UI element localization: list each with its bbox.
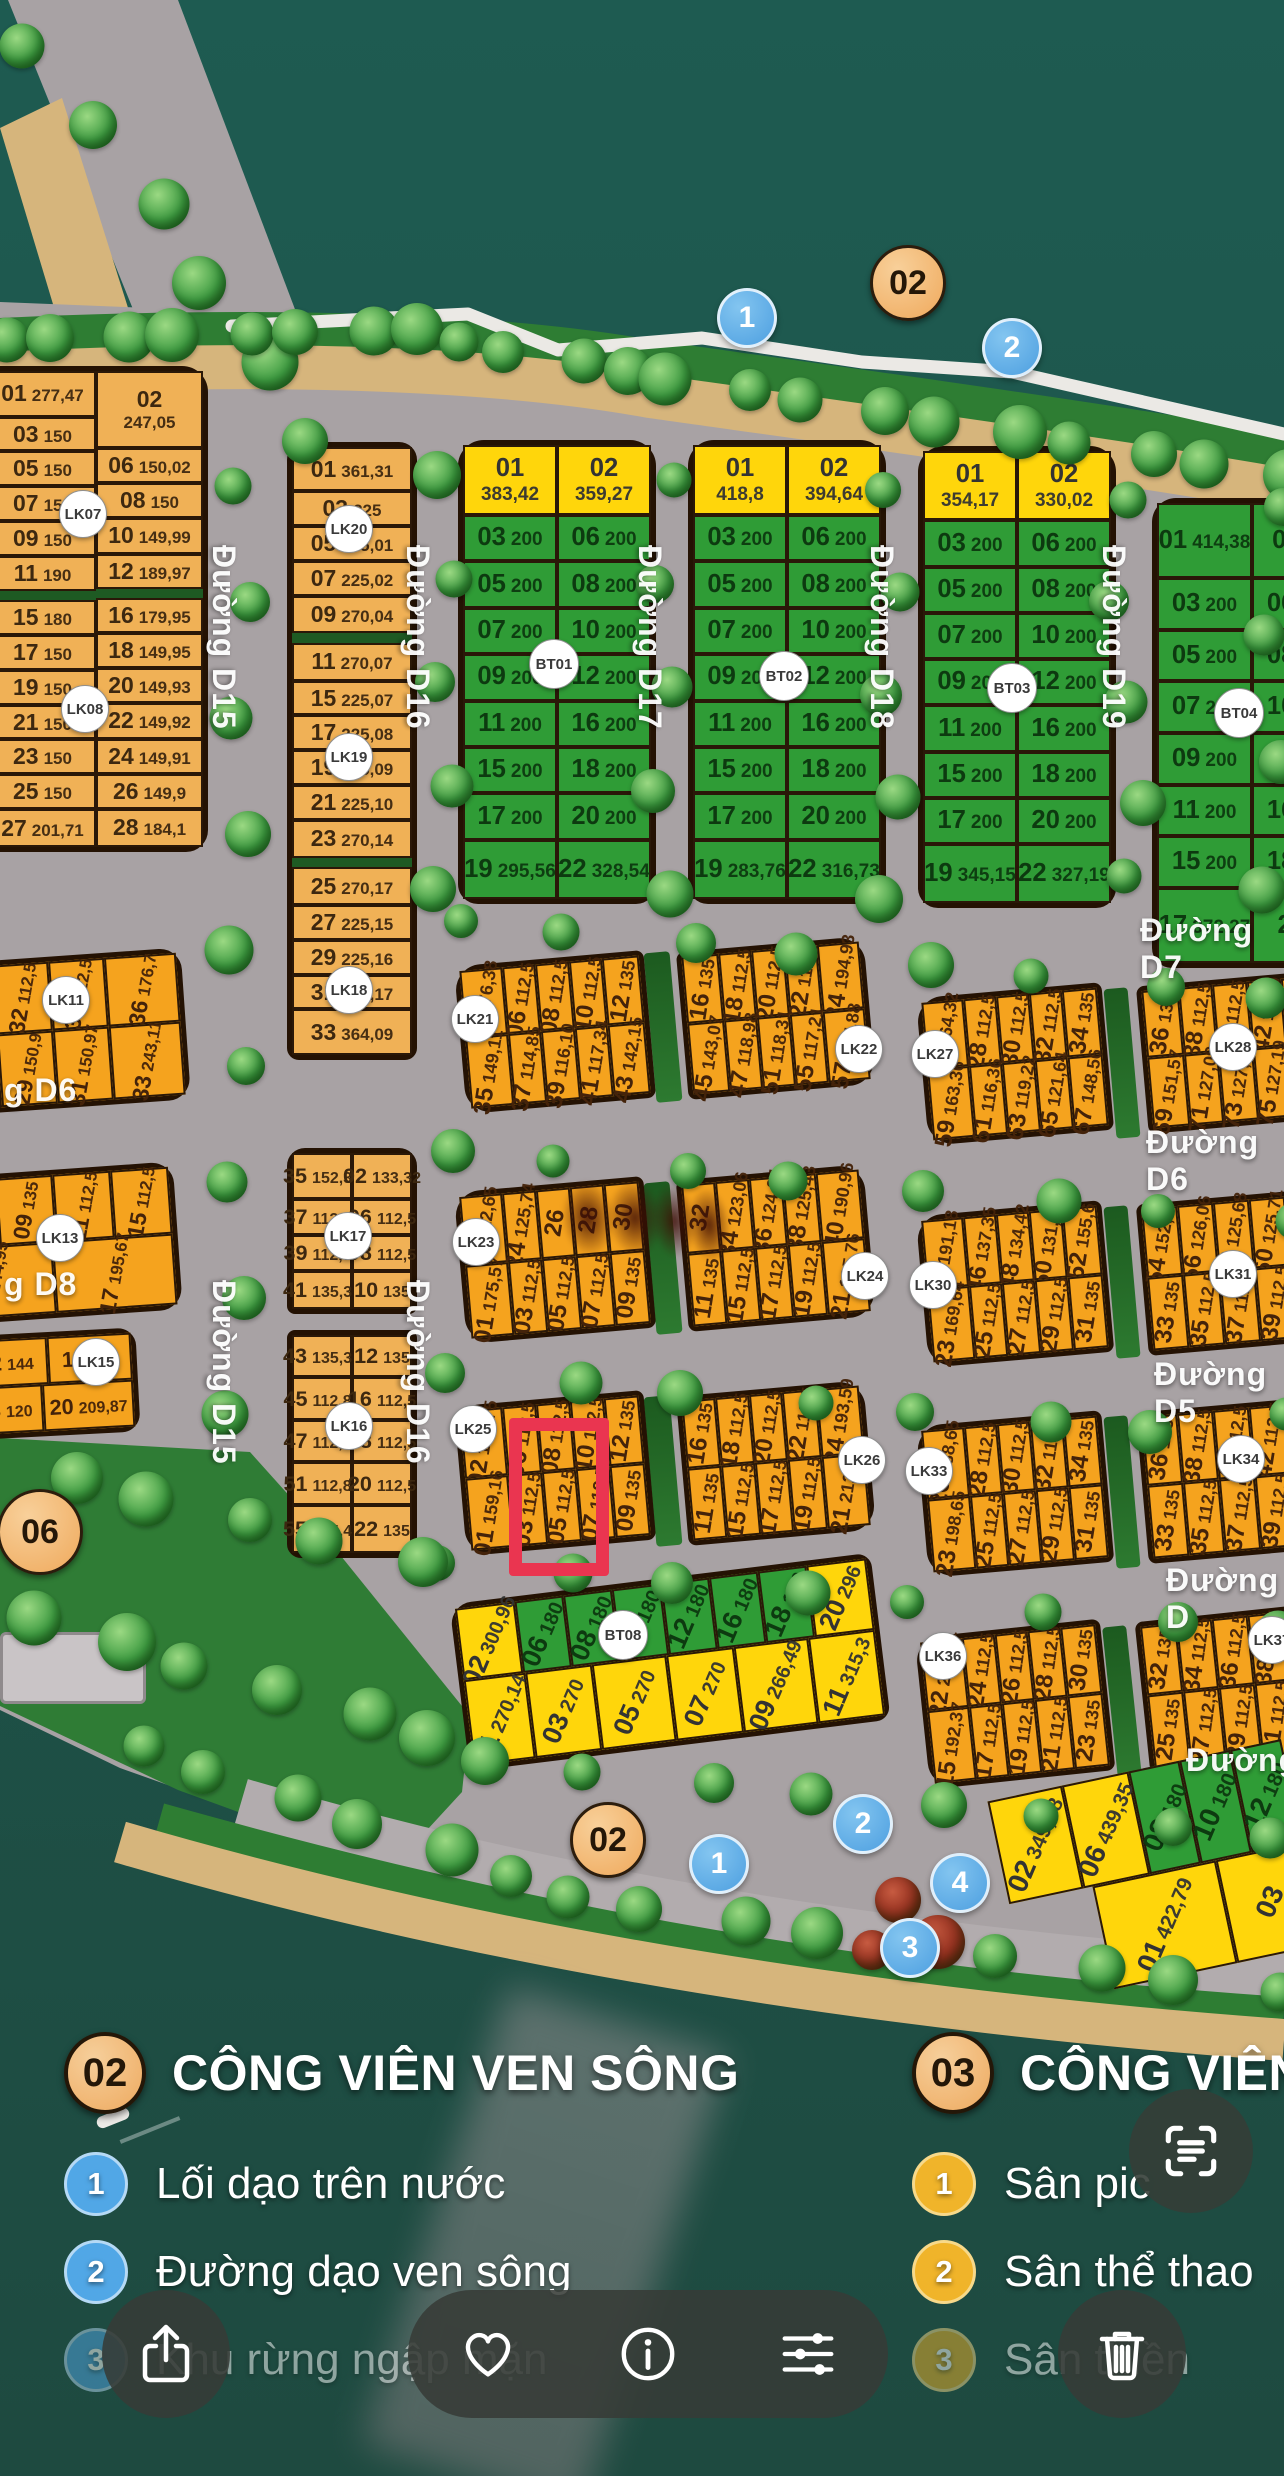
lot-bt01-01: 01383,42 [463, 445, 557, 515]
tree [181, 1750, 225, 1794]
lot-bt04-09: 09200 [1157, 733, 1252, 785]
tree [973, 1934, 1017, 1978]
lot-lk07-16: 16179,95 [96, 598, 203, 633]
lot-lk07-06: 06150,02 [96, 448, 203, 483]
tree [561, 339, 606, 384]
marker-02: 02 [570, 1802, 646, 1878]
lot-lk25-12: 12135 [603, 1395, 644, 1466]
lot-lk15-20: 20209,87 [42, 1380, 136, 1432]
badge-LK19: LK19 [325, 733, 373, 781]
badge-BT02: BT02 [759, 651, 809, 701]
tree [7, 1591, 62, 1646]
tree [670, 1153, 706, 1189]
lot-bt03-20: 20200 [1017, 798, 1111, 844]
street-label: Đường D16 [399, 545, 436, 730]
tree [344, 1688, 397, 1741]
live-text-icon [1158, 2118, 1224, 2184]
tree [139, 179, 190, 230]
lot-bt08-07: 07270 [667, 1647, 744, 1741]
badge-BT01: BT01 [529, 639, 579, 689]
tree [225, 811, 271, 857]
lot-lk07-23: 23150 [0, 739, 96, 774]
lot-bt01-22: 22328,54 [557, 840, 651, 899]
lot-lk07-17: 17150 [0, 635, 96, 670]
tree [275, 1775, 322, 1822]
tree [547, 1876, 590, 1919]
tree [161, 1643, 208, 1690]
legend-item-number: 2 [912, 2240, 976, 2304]
tree [227, 1047, 265, 1085]
lot-bt03-22: 22327,19 [1017, 844, 1111, 903]
lot-bt02-17: 17200 [693, 793, 787, 839]
tree [1141, 1194, 1175, 1228]
green-divider [292, 858, 412, 867]
tree [440, 323, 479, 362]
lot-lk36-23: 23135 [1068, 1693, 1110, 1769]
badge-LK28: LK28 [1209, 1023, 1257, 1071]
lot-lk21-43: 43142,15 [608, 1022, 651, 1096]
street-label: Đường D6 [1146, 1124, 1284, 1198]
lot-lk20-11: 11270,07 [292, 643, 412, 681]
tree [694, 1763, 734, 1803]
tree [145, 308, 199, 362]
info-icon [617, 2323, 679, 2385]
badge-LK33: LK33 [905, 1447, 953, 1495]
lot-lk07-12: 12189,97 [96, 554, 203, 589]
tree [876, 774, 921, 819]
lot-lk07-10: 10149,99 [96, 518, 203, 553]
lot-lk25-09: 09135 [609, 1463, 651, 1538]
badge-LK26: LK26 [838, 1436, 886, 1484]
lot-bt03-03: 03200 [923, 520, 1017, 566]
lot-bt01-03: 03200 [463, 515, 557, 561]
tree [98, 1613, 156, 1671]
lot-bt01-17: 17200 [463, 793, 557, 839]
lot-bt03-15: 15200 [923, 752, 1017, 798]
green-divider [96, 589, 203, 598]
tree [413, 451, 461, 499]
badge-LK11: LK11 [42, 976, 90, 1024]
tree [295, 1518, 342, 1565]
tree [205, 926, 254, 975]
block-lk07: 01277,4703150051500715009150111901518017… [0, 366, 208, 852]
lot-lk07-08: 08150 [96, 483, 203, 518]
tree [332, 1799, 382, 1849]
tree [1154, 1808, 1192, 1846]
lot-bt08-02: 02300,96 [455, 1601, 523, 1680]
lot-bt04-01: 01414,38 [1157, 503, 1252, 578]
lot-lk07-26: 26149,9 [96, 774, 203, 809]
tree [1179, 440, 1228, 489]
marker-1: 1 [689, 1834, 749, 1894]
lot-lk16-51: 51112,83 [292, 1462, 352, 1504]
heart-icon [457, 2323, 519, 2385]
tree [461, 1737, 509, 1785]
tree [69, 101, 117, 149]
lot-bt02-19: 19283,76 [693, 840, 787, 899]
live-text-button[interactable] [1129, 2089, 1253, 2213]
badge-LK24: LK24 [841, 1252, 889, 1300]
street-label: g D6 [4, 1072, 77, 1109]
lot-lk07-15: 15180 [0, 600, 96, 635]
tree [444, 904, 478, 938]
lot-bt01-05: 05200 [463, 561, 557, 607]
badge-LK17: LK17 [324, 1212, 372, 1260]
lot-bt02-15: 15200 [693, 747, 787, 793]
street-label: Đường D5 [1154, 1356, 1284, 1430]
tree [1131, 431, 1177, 477]
tree [993, 405, 1047, 459]
tree [252, 1665, 302, 1715]
lot-lk07-20: 20149,93 [96, 668, 203, 703]
tree [26, 314, 74, 362]
tree [431, 764, 474, 807]
lot-bt03-05: 05200 [923, 567, 1017, 613]
legend-item-number: 3 [912, 2328, 976, 2392]
badge-LK20: LK20 [325, 505, 373, 553]
lot-lk13-15: 15112,5 [110, 1167, 172, 1238]
badge-LK31: LK31 [1209, 1250, 1257, 1298]
stamp-mark [684, 1186, 734, 1264]
badge-LK16: LK16 [325, 1402, 373, 1450]
lot-bt08-05: 05270 [592, 1655, 677, 1750]
lot-lk07-01: 01277,47 [0, 371, 96, 417]
lot-lk07-11: 11190 [0, 556, 96, 591]
badge-LK07: LK07 [59, 490, 107, 538]
lot-bt04-11: 11200 [1157, 785, 1252, 837]
marker-4: 4 [930, 1853, 990, 1913]
marker-3: 3 [880, 1918, 940, 1978]
street-label: Đường D15 [205, 545, 242, 730]
tree [631, 769, 675, 813]
tree [410, 866, 456, 912]
badge-LK18: LK18 [325, 966, 373, 1014]
badge-LK22: LK22 [835, 1025, 883, 1073]
lot-lk17-02: 02133,32 [352, 1153, 412, 1199]
selected-lot-highlight [509, 1418, 609, 1576]
tree [1030, 1402, 1071, 1443]
street-label: Đường D19 [1095, 545, 1132, 730]
tree [563, 1754, 600, 1791]
marker-02: 02 [870, 245, 946, 321]
tree [1244, 614, 1284, 655]
badge-BT04: BT04 [1214, 688, 1264, 738]
lot-lk23-01: 01175,57 [465, 1262, 514, 1338]
lot-lk20-15: 15225,07 [292, 681, 412, 716]
tree [896, 1393, 934, 1431]
legend-item-label: Sân pic [1004, 2159, 1151, 2209]
lot-lk23-09: 09135 [609, 1250, 651, 1326]
tree [902, 1170, 944, 1212]
lot-bt04-05: 05200 [1157, 630, 1252, 682]
legend-item: 1Lối dạo trên nước [64, 2152, 739, 2216]
lot-bt08-11: 11315,3 [808, 1630, 885, 1724]
lot-bt02-11: 11200 [693, 701, 787, 747]
tree [657, 1370, 703, 1416]
tree [426, 1824, 479, 1877]
tree [647, 871, 694, 918]
tree [1250, 1818, 1284, 1859]
lot-lk20-27: 27225,15 [292, 905, 412, 940]
lot-bt04-03: 03200 [1157, 578, 1252, 630]
tree [1107, 859, 1142, 894]
green-divider [292, 633, 412, 642]
lot-lk20-25: 25270,17 [292, 867, 412, 905]
lot-lk07-18: 18149,95 [96, 633, 203, 668]
green-divider [0, 591, 96, 600]
lot-lk21-35: 35149,11 [465, 1034, 514, 1108]
lot-lk16-43: 43135,36 [292, 1335, 352, 1377]
badge-LK23: LK23 [452, 1218, 500, 1266]
tree [861, 387, 909, 435]
tree [215, 468, 252, 505]
lot-lk27-67: 67148,56 [1068, 1055, 1109, 1128]
marker-2: 2 [833, 1794, 893, 1854]
tree [1079, 1945, 1126, 1992]
lot-lk36-30: 30135 [1061, 1624, 1103, 1697]
tree [777, 378, 822, 423]
tree [228, 1498, 272, 1542]
lot-lk22-45: 45143,07 [687, 1021, 730, 1095]
tree [124, 1726, 165, 1767]
tree [431, 1129, 475, 1173]
tree [921, 1782, 967, 1828]
tree [230, 312, 273, 355]
tree [768, 1162, 807, 1201]
tree [1120, 780, 1166, 826]
tree [0, 24, 45, 69]
badge-LK27: LK27 [911, 1030, 959, 1078]
lot-bt03-01: 01354,17 [923, 451, 1017, 520]
block-lk33: 26188,6528112,530112,532112,53413523198,… [916, 1410, 1115, 1578]
tree [282, 418, 328, 464]
lot-bt03-11: 11200 [923, 705, 1017, 751]
legend-title-03: CÔNG VIÊN [1020, 2044, 1284, 2102]
lot-bt01-02: 02359,27 [557, 445, 651, 515]
tree [790, 1773, 833, 1816]
badge-LK25: LK25 [449, 1405, 497, 1453]
badge-LK30: LK30 [909, 1261, 957, 1309]
tree [207, 1162, 248, 1203]
tree [651, 1562, 693, 1604]
block-lk15: 12144141201812020209,87 [0, 1327, 141, 1440]
tree [729, 369, 771, 411]
lot-lk07-28: 28184,1 [96, 809, 203, 847]
badge-BT08: BT08 [598, 1610, 648, 1660]
lot-lk20-33: 33364,09 [292, 1009, 412, 1055]
lot-lk22-24: 24194,93 [817, 942, 864, 1013]
lot-lk28-69: 69151,57 [1147, 1055, 1190, 1129]
tree [172, 256, 226, 310]
legend-item-label: Lối dạo trên nước [156, 2159, 505, 2209]
adjust-button[interactable] [748, 2294, 868, 2414]
lot-bt04-15: 15200 [1157, 836, 1252, 888]
marker-06: 06 [0, 1489, 83, 1575]
legend-title-02: CÔNG VIÊN VEN SÔNG [172, 2044, 739, 2102]
lot-lk28-75: 75127,19 [1252, 1046, 1284, 1119]
tree [616, 1886, 662, 1932]
badge-BT03: BT03 [987, 663, 1037, 713]
lot-lk20-23: 23270,14 [292, 820, 412, 858]
badge-LK15: LK15 [72, 1338, 120, 1386]
tree [482, 331, 524, 373]
toolbar-pill [408, 2290, 888, 2418]
lot-bt04-16: 16200 [1252, 785, 1284, 837]
tree [1148, 1955, 1198, 2005]
street-label: Đường D18 [863, 545, 900, 730]
lot-bt08-06: 06180 [515, 1596, 572, 1673]
badge-LK34: LK34 [1217, 1435, 1265, 1483]
lot-lk07-24: 24149,91 [96, 739, 203, 774]
tree [798, 1385, 833, 1420]
legend-item-number: 1 [64, 2152, 128, 2216]
lot-lk20-09: 09270,04 [292, 596, 412, 634]
tree [774, 933, 817, 976]
tree [490, 1855, 532, 1897]
tree [657, 463, 692, 498]
lot-lk20-21: 21225,10 [292, 785, 412, 820]
tree [536, 1145, 569, 1178]
lot-bt03-18: 18200 [1017, 752, 1111, 798]
tree [1048, 422, 1091, 465]
tree [436, 560, 473, 597]
tree [118, 1472, 173, 1527]
tree [855, 875, 903, 923]
tree [1036, 1179, 1081, 1224]
tree [865, 472, 901, 508]
lot-lk07-03: 03150 [0, 417, 96, 452]
tree [272, 309, 318, 355]
trash-icon [1090, 2322, 1154, 2386]
favorite-button[interactable] [428, 2294, 548, 2414]
share-icon [134, 2322, 198, 2386]
street-label: Đường D7 [1140, 912, 1284, 986]
tree [1013, 959, 1048, 994]
lot-lk07-25: 25150 [0, 774, 96, 809]
lot-bt08-16: 16180 [709, 1572, 766, 1649]
lot-bt01-11: 11200 [463, 701, 557, 747]
lot-bt01-15: 15200 [463, 747, 557, 793]
lot-lk20-07: 07225,02 [292, 561, 412, 596]
lot-lk31-39: 39112,5 [1255, 1266, 1284, 1342]
lot-lk07-27: 27201,71 [0, 809, 96, 847]
marker-2: 2 [982, 318, 1042, 378]
badge-LK13: LK13 [36, 1214, 84, 1262]
tree [908, 942, 954, 988]
lot-bt02-20: 20200 [787, 793, 881, 839]
lot-bt03-07: 07200 [923, 613, 1017, 659]
lot-lk25-01: 01159,16 [465, 1475, 514, 1550]
lot-lk11-33: 33243,11 [109, 1022, 186, 1100]
lot-lk30-31: 31135 [1068, 1275, 1109, 1350]
badge-LK08: LK08 [61, 685, 109, 733]
tree [1024, 1594, 1061, 1631]
legend-item-number: 2 [64, 2240, 128, 2304]
lot-lk07-05: 05150 [0, 451, 96, 486]
red-tree [875, 1877, 921, 1923]
legend-item-number: 1 [912, 2152, 976, 2216]
legend-badge-03: 03 [912, 2032, 994, 2114]
lot-bt03-17: 17200 [923, 798, 1017, 844]
lot-bt08-09: 09266,49 [733, 1638, 818, 1733]
info-button[interactable] [588, 2294, 708, 2414]
tree [542, 914, 579, 951]
lot-lk07-02: 02247,05 [96, 371, 203, 448]
lot-lk15-18: 18120 [0, 1384, 44, 1435]
lot-bt02-01: 01418,8 [693, 445, 787, 515]
tree [399, 1710, 455, 1766]
lot-bt02-07: 07200 [693, 608, 787, 654]
tree [398, 1537, 448, 1587]
lot-bt08-03: 03270 [525, 1664, 602, 1758]
tree [391, 303, 443, 355]
street-label: Đường D17 [631, 545, 668, 730]
legend-badge-02: 02 [64, 2032, 146, 2114]
street-label: Đường D16 [399, 1280, 436, 1465]
lot-lk34-39: 39112,5 [1255, 1474, 1284, 1550]
tree [676, 923, 716, 963]
tree [1023, 1799, 1058, 1834]
lot-lk17-41: 41135,33 [292, 1271, 352, 1309]
marker-1: 1 [717, 288, 777, 348]
delete-button[interactable] [1058, 2290, 1186, 2418]
lot-bt01-19: 19295,56 [463, 840, 557, 899]
tree [890, 1585, 924, 1619]
lot-lk07-22: 22149,92 [96, 703, 203, 738]
lot-lk15-12: 12144 [0, 1337, 49, 1388]
lot-lk33-31: 31135 [1068, 1485, 1109, 1560]
tree [1239, 867, 1284, 914]
lot-bt02-05: 05200 [693, 561, 787, 607]
tree [909, 396, 960, 447]
street-label: g D8 [4, 1266, 77, 1303]
street-label: Đường D15 [205, 1280, 242, 1465]
tree [722, 1896, 771, 1945]
photo-viewer[interactable]: 01277,4703150051500715009150111901518017… [0, 0, 1284, 2476]
lot-bt03-19: 19345,15 [923, 844, 1017, 903]
share-button[interactable] [102, 2290, 230, 2418]
lot-bt02-18: 18200 [787, 747, 881, 793]
badge-LK21: LK21 [451, 995, 499, 1043]
lot-lk16-20: 20112,5 [352, 1462, 412, 1504]
tree [559, 1361, 602, 1404]
tree [639, 353, 692, 406]
lot-bt02-03: 03200 [693, 515, 787, 561]
badge-LK36: LK36 [919, 1632, 967, 1680]
tree [791, 1907, 843, 1959]
street-label: Đường [1186, 1742, 1284, 1779]
tree [785, 1570, 830, 1615]
tree [1110, 482, 1147, 519]
lot-lk11-36: 36176,7 [104, 953, 180, 1027]
sliders-icon [777, 2323, 839, 2385]
